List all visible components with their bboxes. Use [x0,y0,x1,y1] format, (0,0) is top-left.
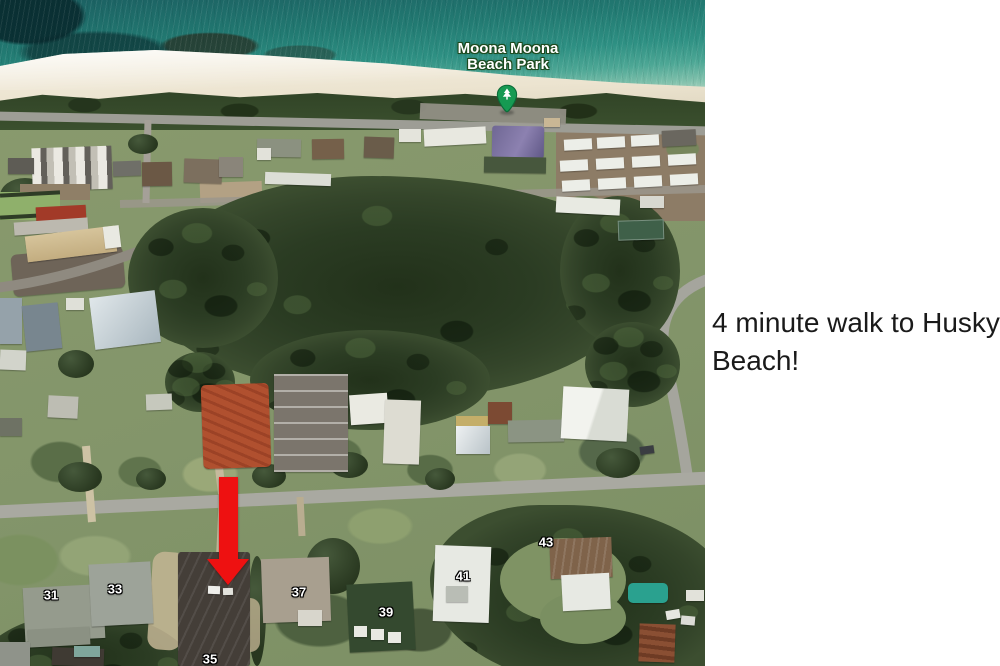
roof-detail [446,586,468,602]
building [219,157,243,177]
building [686,590,704,601]
building [74,646,100,657]
building [364,136,395,158]
park-tree-pin-icon [496,84,518,114]
building [142,162,172,187]
car [681,615,696,625]
silver-roof-building [89,290,161,350]
building [66,298,84,310]
caravan-cabin [564,138,593,150]
caravan-cabin [556,196,621,215]
tennis-court [618,219,665,241]
house-number-33: 33 [108,582,122,597]
garage-door [354,626,367,637]
caravan-cabin [632,155,661,167]
tree-cluster [425,468,455,490]
building [257,148,271,160]
house-number-35: 35 [203,652,217,666]
car [208,586,220,594]
park-label-line2: Beach Park [467,57,549,72]
house-number-37: 37 [292,585,306,600]
caravan-cabin [640,196,664,208]
caravan-cabin [670,173,699,185]
building [399,129,421,142]
garage-door [388,632,401,643]
terracotta-roof-house [201,383,272,469]
caption-panel: 4 minute walk to Husky Beach! [705,0,1000,666]
caravan-cabin [596,157,625,169]
tree-cluster [58,350,94,378]
shed [298,610,322,626]
tree-cluster [58,462,102,492]
house-number-39: 39 [379,605,393,620]
building [8,158,34,174]
purple-roof-building [492,126,545,159]
building [265,172,331,186]
listing-image: Moona Moona Beach Park 31 33 35 37 39 41… [0,0,1000,666]
building [0,298,22,344]
building [113,161,142,177]
building [561,573,611,611]
red-down-arrow-annotation [207,477,250,585]
caravan-cabin [562,179,591,191]
caravan-cabin [634,175,663,187]
tree-cluster [128,134,158,154]
beach-road [0,116,705,131]
building [274,374,348,472]
building [484,156,546,173]
building [424,126,487,146]
driveway [300,497,302,536]
building [0,642,30,666]
house-41-roof [433,545,492,623]
caption-text: 4 minute walk to Husky Beach! [712,304,1000,380]
house-31-wing [28,626,91,647]
house-number-31: 31 [44,588,58,603]
park-label-line1: Moona Moona [458,41,559,56]
building [544,118,560,127]
building [22,302,63,352]
swimming-pool [628,583,668,603]
car [223,588,233,595]
tree-cluster [136,468,166,490]
building [383,399,421,464]
caravan-cabin [597,136,626,148]
caravan-cabin [598,177,627,189]
building [662,129,697,147]
building [456,426,490,454]
satellite-map: Moona Moona Beach Park 31 33 35 37 39 41… [0,0,705,666]
house-number-41: 41 [456,569,470,584]
arrow-shaft [219,477,238,561]
beach-parking [420,111,566,117]
building [0,418,22,436]
arrow-head [207,559,249,585]
building [508,420,564,443]
rusty-roof-shed [638,623,675,662]
building [47,395,78,419]
tree-cluster [596,448,640,478]
caravan-cabin [560,159,589,171]
building [0,350,26,371]
building [349,393,389,426]
caravan-cabin [668,153,697,165]
white-roof-house [561,386,630,441]
caravan-cabin [631,134,660,146]
building [312,139,344,160]
garage-door [371,629,384,640]
house-number-43: 43 [539,535,553,550]
building [184,158,223,183]
building [146,394,173,411]
building [103,225,122,249]
